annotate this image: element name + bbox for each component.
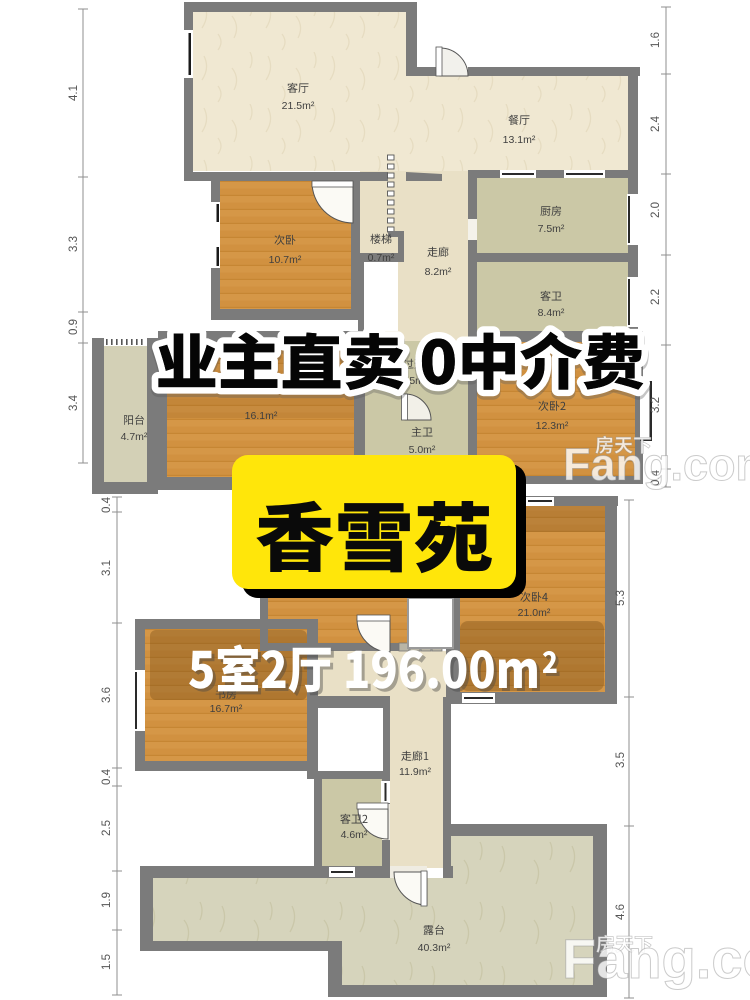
- svg-text:4.6m²: 4.6m²: [341, 829, 368, 841]
- svg-text:Fang.com: Fang.com: [562, 927, 750, 990]
- svg-text:4.7m²: 4.7m²: [121, 431, 148, 443]
- svg-text:2.4: 2.4: [650, 115, 662, 132]
- svg-text:12.3m²: 12.3m²: [536, 420, 569, 432]
- svg-text:40.3m²: 40.3m²: [418, 942, 451, 954]
- svg-text:2.5: 2.5: [101, 820, 113, 836]
- svg-text:8.4m²: 8.4m²: [538, 307, 565, 319]
- svg-text:0.4: 0.4: [101, 496, 113, 513]
- svg-text:1.5: 1.5: [101, 954, 113, 970]
- svg-text:0.7m²: 0.7m²: [368, 252, 395, 264]
- svg-text:3.2: 3.2: [650, 397, 662, 413]
- svg-text:3.5: 3.5: [615, 752, 627, 768]
- svg-text:11.9m²: 11.9m²: [399, 766, 431, 778]
- svg-text:0.9: 0.9: [68, 319, 80, 335]
- svg-text:7.5m²: 7.5m²: [538, 223, 565, 235]
- svg-text:3.4: 3.4: [68, 394, 80, 411]
- svg-text:1.6: 1.6: [650, 32, 662, 48]
- svg-text:8.2m²: 8.2m²: [425, 266, 452, 278]
- svg-text:16.7m²: 16.7m²: [210, 703, 243, 715]
- svg-text:16.1m²: 16.1m²: [245, 410, 278, 422]
- svg-text:0.4: 0.4: [101, 768, 113, 785]
- svg-text:5.0m²: 5.0m²: [409, 444, 436, 456]
- svg-text:4.6: 4.6: [615, 904, 627, 920]
- svg-text:10.7m²: 10.7m²: [269, 254, 302, 266]
- svg-text:3.1: 3.1: [101, 560, 113, 576]
- svg-text:1.9: 1.9: [101, 892, 113, 908]
- svg-text:5.3: 5.3: [615, 590, 627, 606]
- svg-text:2.2: 2.2: [650, 289, 662, 305]
- svg-text:4.1: 4.1: [68, 85, 80, 101]
- svg-text:13.1m²: 13.1m²: [503, 134, 536, 146]
- svg-text:3.3: 3.3: [68, 236, 80, 252]
- svg-text:Fang.com: Fang.com: [563, 439, 750, 490]
- svg-text:2.0: 2.0: [650, 202, 662, 218]
- svg-text:21.0m²: 21.0m²: [518, 607, 551, 619]
- svg-text:3.6: 3.6: [101, 687, 113, 703]
- svg-text:21.5m²: 21.5m²: [282, 100, 315, 112]
